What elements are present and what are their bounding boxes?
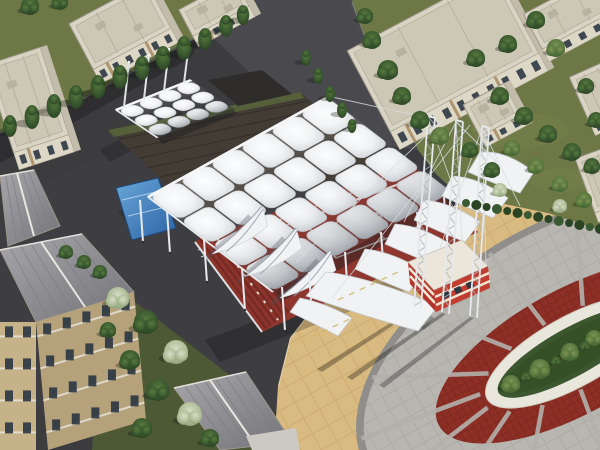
render-viewport [0,0,600,450]
aerial-render-canvas [0,0,600,450]
